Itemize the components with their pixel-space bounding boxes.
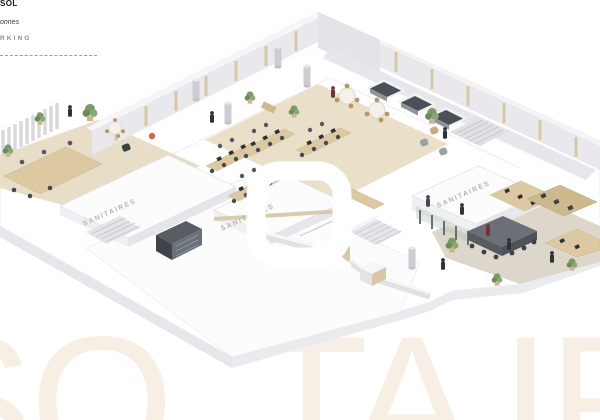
watermark-letter: S [0, 299, 33, 420]
watermark-letter: I [500, 299, 551, 420]
legend-floor-name: SOL [0, 0, 97, 8]
legend-scale-dashes [0, 55, 97, 56]
legend-capacity: onnes [0, 19, 97, 26]
legend-zone-name: RKING [0, 35, 97, 42]
floorplan-canvas: S O T A I R [0, 0, 600, 420]
watermark-letter: R [548, 299, 600, 420]
orange-chair [149, 133, 155, 139]
legend: SOL onnes RKING [0, 0, 97, 56]
floorplan-render: S O T A I R [0, 0, 600, 420]
